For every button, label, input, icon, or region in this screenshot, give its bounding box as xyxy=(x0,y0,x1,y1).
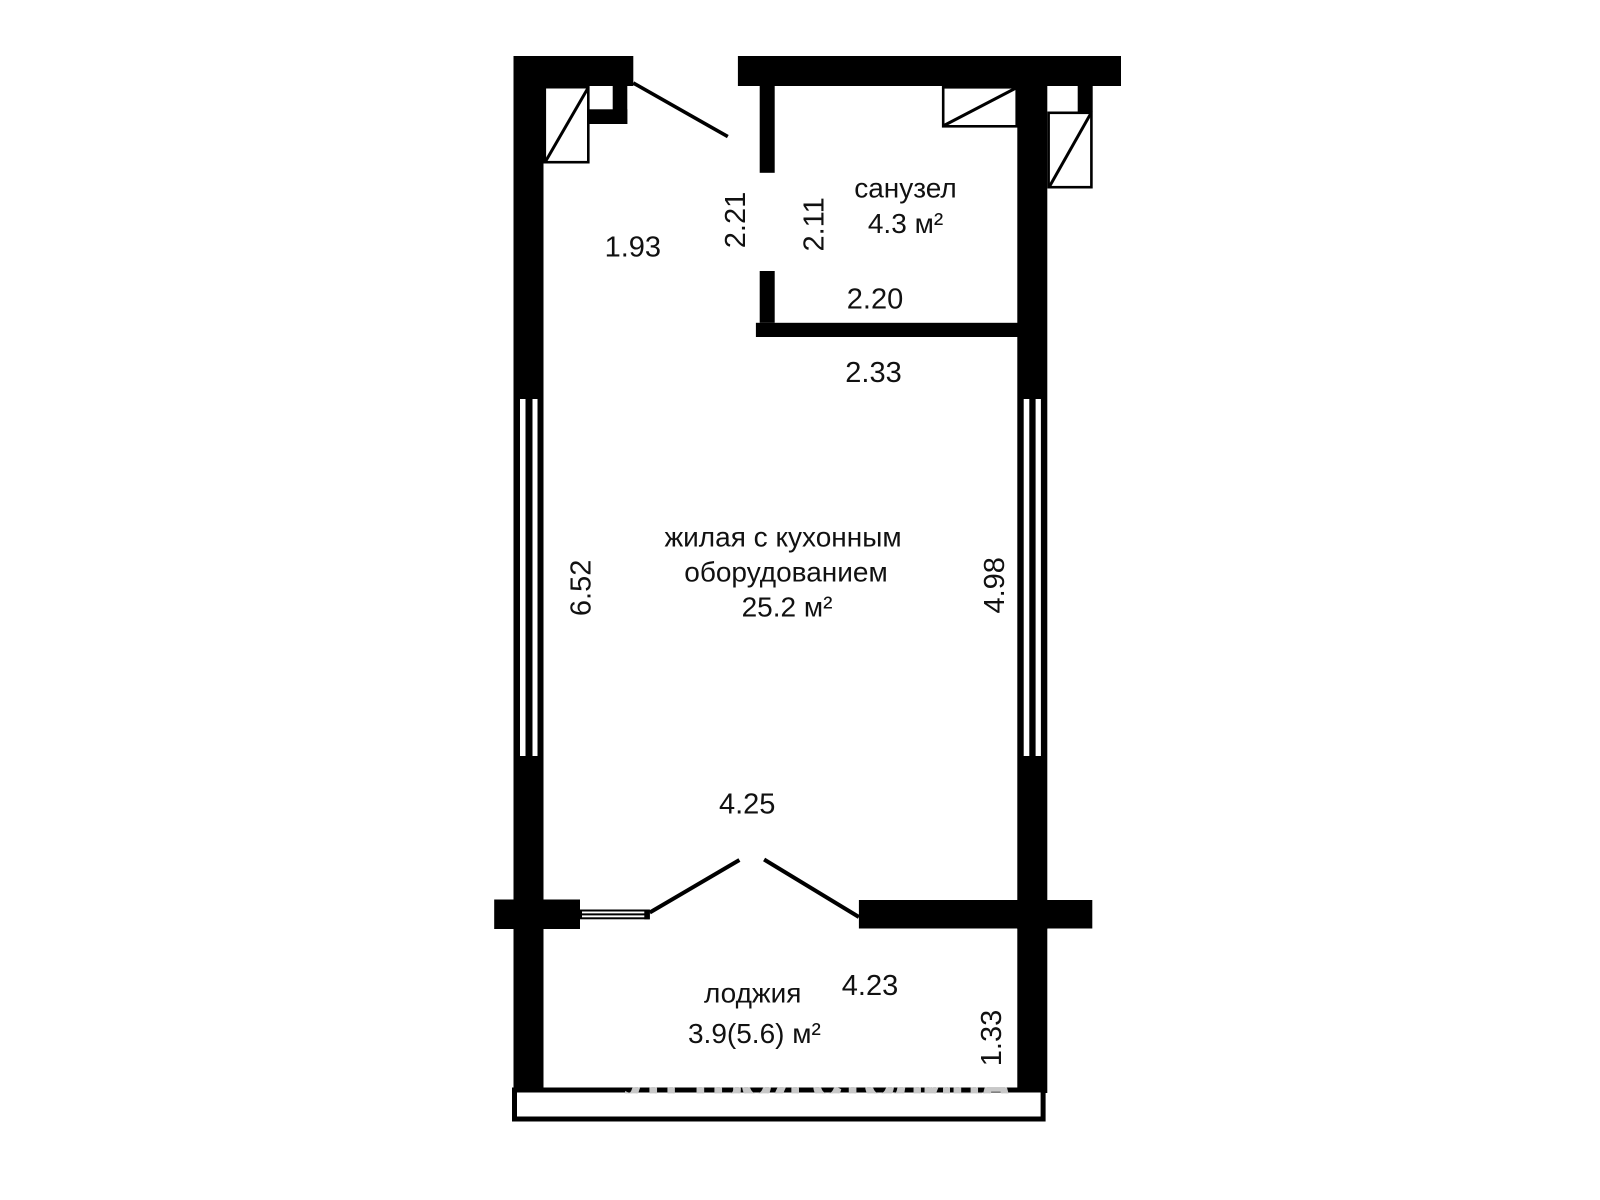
svg-text:жилая с кухонным: жилая с кухонным xyxy=(664,521,901,552)
svg-text:2.21: 2.21 xyxy=(720,192,752,248)
svg-text:оборудованием: оборудованием xyxy=(684,557,887,588)
svg-text:4.23: 4.23 xyxy=(842,970,898,1002)
svg-text:1.33: 1.33 xyxy=(976,1010,1008,1066)
svg-text:1.93: 1.93 xyxy=(605,232,661,264)
svg-text:2.33: 2.33 xyxy=(845,357,901,389)
svg-text:санузел: санузел xyxy=(854,172,957,203)
svg-text:2.20: 2.20 xyxy=(847,284,903,316)
svg-text:4.25: 4.25 xyxy=(719,789,775,821)
svg-text:3.9(5.6) м²: 3.9(5.6) м² xyxy=(688,1018,821,1049)
svg-text:6.52: 6.52 xyxy=(565,560,597,616)
svg-text:25.2 м²: 25.2 м² xyxy=(742,592,833,623)
svg-text:лоджия: лоджия xyxy=(704,978,801,1009)
svg-text:4.3 м²: 4.3 м² xyxy=(868,208,943,239)
svg-text:2.11: 2.11 xyxy=(799,197,831,251)
svg-text:4.98: 4.98 xyxy=(979,557,1011,613)
